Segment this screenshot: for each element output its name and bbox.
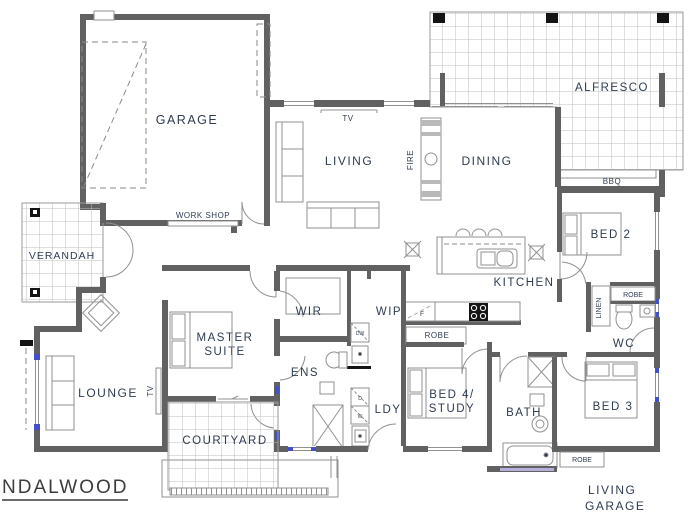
cooktop [469, 303, 488, 321]
note-line2: GARAGE [585, 499, 645, 513]
tub-window-accent [500, 468, 554, 471]
bed4-label-line2: STUDY [429, 403, 475, 415]
alfresco-post [657, 13, 669, 23]
garage-area: GARAGE WORK SHOP [80, 11, 270, 233]
workshop-door-arc [242, 202, 264, 224]
bath-vanity [530, 394, 544, 406]
bed4-robe-label: ROBE [425, 331, 450, 340]
workshop-label: WORK SHOP [176, 211, 230, 220]
bed3-robe-label: ROBE [572, 457, 592, 464]
workbench [168, 221, 238, 226]
wc-toilet [616, 305, 632, 329]
pantry-sink [352, 346, 368, 363]
skylight-symbol [528, 244, 545, 261]
bath-shower [528, 357, 555, 387]
kitchen-area: KITCHEN F [401, 229, 554, 325]
pier [20, 340, 33, 346]
ens-label: ENS [291, 367, 319, 379]
verandah-post [30, 208, 40, 217]
bed3-label: BED 3 [593, 401, 634, 413]
verandah-post [30, 288, 40, 297]
alfresco-post [433, 13, 445, 23]
window-mark [655, 368, 659, 373]
dining-label: DINING [462, 154, 513, 168]
master-door-arc [250, 271, 276, 297]
ens-vanity [320, 382, 334, 394]
car-space [82, 42, 146, 188]
bath-label: BATH [506, 407, 542, 419]
living-tv-label: TV [342, 114, 353, 123]
ldy-label: LDY [375, 404, 402, 416]
skylight-symbol [404, 241, 421, 258]
wc-basin [640, 305, 655, 317]
window-mark [34, 424, 40, 430]
dryer-label: D [358, 396, 362, 402]
ldy-door-arc [368, 424, 396, 450]
bed2-label: BED 2 [591, 229, 632, 241]
bbq-label: BBQ [603, 177, 621, 186]
master-label-line1: MASTER [197, 332, 254, 344]
bathtub [503, 443, 557, 468]
hall-door-arc [562, 262, 586, 284]
floor-plan-drawing: ALFRESCO BBQ GARAGE WORK SHOP VERANDAH [0, 0, 700, 513]
window-mark [275, 386, 279, 394]
floor-plan: ALFRESCO BBQ GARAGE WORK SHOP VERANDAH [0, 0, 700, 513]
lounge-tv-label: TV [146, 385, 155, 396]
wip-label: WIP [376, 306, 402, 318]
entry-door-arc [106, 223, 133, 250]
washer-label: W [358, 414, 363, 420]
bed3-door-arc [562, 357, 586, 381]
lounge-label: LOUNGE [78, 386, 138, 400]
window-mark [311, 447, 316, 451]
living-dining-area: TV FIRE LIVING DINING [270, 100, 561, 228]
entry-door-arc [106, 250, 133, 277]
meter-box [94, 11, 114, 20]
bath-door-arc [500, 356, 527, 382]
sofa [276, 122, 303, 202]
kitchen-island [437, 229, 525, 274]
master-label-line2: SUITE [204, 346, 245, 358]
note-line1: LIVING [588, 483, 636, 497]
window-mark [655, 397, 659, 402]
garage-label: GARAGE [156, 113, 219, 127]
alfresco-label: ALFRESCO [575, 82, 649, 94]
window-mark [288, 447, 293, 451]
tv-unit [156, 368, 161, 414]
window-mark [34, 354, 40, 360]
bed2-north-wall [557, 186, 661, 193]
living-label: LIVING [325, 154, 373, 168]
fridge-label: F [420, 311, 424, 318]
alfresco-post [546, 13, 558, 23]
verandah-label: VERANDAH [29, 250, 95, 262]
fireplace [421, 118, 441, 200]
ens-toilet [326, 352, 347, 368]
deck-boards [170, 488, 328, 495]
fire-label: FIRE [406, 150, 415, 170]
dw-label: DW [356, 331, 365, 337]
window-mark [655, 312, 659, 317]
bedroom-wing: ROBE BED 4/ STUDY [401, 188, 660, 472]
plan-title: NDALWOOD [2, 477, 128, 498]
blade-wall [440, 73, 445, 107]
wir-label: WIR [296, 306, 323, 318]
wc-label: WC [613, 338, 635, 350]
sofa [46, 356, 74, 430]
lounge-area: TV LOUNGE [20, 287, 168, 452]
bed4-label-line1: BED 4/ [429, 389, 474, 401]
hall-robe-label: ROBE [623, 292, 643, 299]
ens-shower [313, 405, 343, 448]
sofa [307, 202, 379, 228]
linen-label: LINEN [596, 298, 603, 319]
courtyard-label: COURTYARD [182, 435, 267, 447]
kitchen-label: KITCHEN [494, 277, 555, 289]
blade-wall [659, 73, 665, 107]
laundry-trough [352, 426, 369, 446]
